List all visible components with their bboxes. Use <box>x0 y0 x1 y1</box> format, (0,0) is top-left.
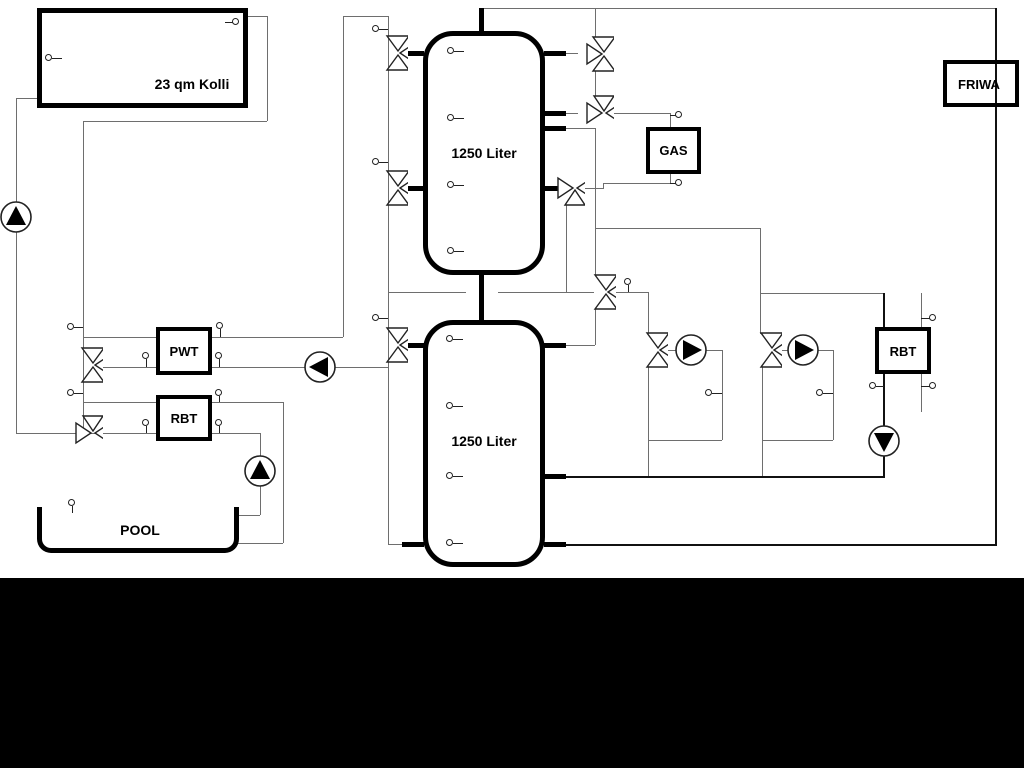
sensor-stem <box>453 476 463 477</box>
sensor-stem <box>52 58 62 59</box>
pipe-segment <box>760 293 884 294</box>
temp-sensor-icon <box>67 389 74 396</box>
sensor-stem <box>72 506 73 513</box>
sensor-stem <box>670 115 676 116</box>
gas-label: GAS <box>646 143 701 158</box>
pump-icon <box>0 200 33 234</box>
temp-sensor-icon <box>929 382 936 389</box>
temp-sensor-icon <box>215 352 222 359</box>
sensor-stem <box>219 426 220 433</box>
sensor-stem <box>146 359 147 367</box>
pump-icon <box>786 333 820 367</box>
pipe-segment <box>238 543 283 544</box>
pipe-segment <box>648 292 649 334</box>
sensor-stem <box>453 339 463 340</box>
pipe-segment <box>595 128 596 276</box>
sensor-stem <box>379 29 388 30</box>
tank-port <box>544 111 566 116</box>
sensor-stem <box>225 22 233 23</box>
sensor-stem <box>921 318 930 319</box>
pipe-segment <box>760 228 761 334</box>
tank-port <box>479 275 484 320</box>
temp-sensor-icon <box>67 323 74 330</box>
pipe-segment <box>612 292 648 293</box>
tank-port <box>544 51 566 56</box>
pipe-segment <box>595 308 596 345</box>
temp-sensor-icon <box>447 114 454 121</box>
temp-sensor-icon <box>446 472 453 479</box>
pipe-segment <box>238 515 260 516</box>
pipe-segment <box>267 16 268 121</box>
pipe-segment <box>16 98 38 99</box>
temp-sensor-icon <box>232 18 239 25</box>
pump-icon <box>303 350 337 384</box>
sensor-stem <box>876 386 884 387</box>
sensor-stem <box>379 318 388 319</box>
pipe-segment <box>611 113 670 114</box>
pipe-segment <box>762 366 763 477</box>
pipe-segment <box>762 440 833 441</box>
pwt-label: PWT <box>156 344 212 359</box>
tank-port <box>544 343 566 348</box>
three-way-valve-icon <box>63 345 103 385</box>
hydraulic-schematic: 23 qm Kolli 1250 Liter 1250 Liter GAS FR… <box>0 0 1024 768</box>
temp-sensor-icon <box>675 179 682 186</box>
sensor-stem <box>219 396 220 402</box>
sensor-stem <box>823 393 833 394</box>
three-way-valve-icon <box>368 33 408 73</box>
sensor-stem <box>628 285 629 292</box>
tank-upper-label: 1250 Liter <box>424 145 544 161</box>
pipe-segment <box>247 16 267 17</box>
sensor-stem <box>74 393 83 394</box>
pipe-segment <box>498 292 566 293</box>
sensor-stem <box>219 359 220 367</box>
tank-lower-label: 1250 Liter <box>424 433 544 449</box>
collector-label: 23 qm Kolli <box>122 76 262 92</box>
temp-sensor-icon <box>447 181 454 188</box>
sensor-stem <box>453 543 463 544</box>
pipe-segment <box>343 16 388 17</box>
pipe-segment <box>83 121 84 433</box>
three-way-valve-icon <box>368 325 408 365</box>
pipe-segment <box>83 121 267 122</box>
pipe-segment <box>603 183 670 184</box>
pipe-segment <box>566 476 885 478</box>
temp-sensor-icon <box>675 111 682 118</box>
temp-sensor-icon <box>624 278 631 285</box>
sensor-stem <box>670 183 676 184</box>
temp-sensor-icon <box>45 54 52 61</box>
pipe-segment <box>16 98 17 433</box>
temp-sensor-icon <box>215 419 222 426</box>
temp-sensor-icon <box>816 389 823 396</box>
sensor-stem <box>146 426 147 433</box>
sensor-stem <box>712 393 722 394</box>
pipe-segment <box>566 345 595 346</box>
three-way-valve-icon <box>574 34 614 74</box>
temp-sensor-icon <box>705 389 712 396</box>
temp-sensor-icon <box>68 499 75 506</box>
sensor-stem <box>74 327 83 328</box>
pump-icon <box>867 424 901 458</box>
tank-port <box>544 474 566 479</box>
three-way-valve-icon <box>576 272 616 312</box>
temp-sensor-icon <box>869 382 876 389</box>
pipe-segment <box>388 292 466 293</box>
sensor-stem <box>921 386 930 387</box>
tank-port <box>544 542 566 547</box>
temp-sensor-icon <box>372 158 379 165</box>
pipe-segment <box>833 350 834 440</box>
three-way-valve-icon <box>368 168 408 208</box>
pipe-segment <box>722 350 723 440</box>
temp-sensor-icon <box>215 389 222 396</box>
pipe-segment <box>648 366 649 477</box>
pipe-segment <box>388 16 389 544</box>
sensor-stem <box>220 329 221 337</box>
solar-collector <box>37 8 248 108</box>
three-way-valve-icon <box>742 330 782 370</box>
sensor-stem <box>454 118 464 119</box>
temp-sensor-icon <box>446 539 453 546</box>
rbt-left-label: RBT <box>156 411 212 426</box>
temp-sensor-icon <box>446 335 453 342</box>
bottom-black-bar <box>0 578 1024 768</box>
three-way-valve-icon <box>63 413 103 453</box>
pipe-segment <box>16 433 260 434</box>
temp-sensor-icon <box>446 402 453 409</box>
pipe-segment <box>566 202 567 292</box>
sensor-stem <box>453 406 463 407</box>
three-way-valve-icon <box>545 168 585 208</box>
tank-port <box>479 8 484 32</box>
sensor-stem <box>454 51 464 52</box>
temp-sensor-icon <box>447 247 454 254</box>
rbt-right-label: RBT <box>875 344 931 359</box>
pipe-segment <box>283 402 284 543</box>
temp-sensor-icon <box>142 419 149 426</box>
pipe-segment <box>595 228 760 229</box>
pipe-segment <box>343 16 344 337</box>
pipe-segment <box>83 337 343 338</box>
tank-port <box>544 126 566 131</box>
friwa-label: FRIWA <box>941 77 1017 92</box>
temp-sensor-icon <box>372 314 379 321</box>
sensor-stem <box>454 185 464 186</box>
temp-sensor-icon <box>447 47 454 54</box>
three-way-valve-icon <box>574 93 614 133</box>
tank-port <box>402 542 424 547</box>
temp-sensor-icon <box>372 25 379 32</box>
temp-sensor-icon <box>929 314 936 321</box>
pipe-segment <box>603 183 604 189</box>
pipe-segment <box>481 8 997 9</box>
pump-icon <box>243 454 277 488</box>
sensor-stem <box>379 162 388 163</box>
pipe-segment <box>388 544 403 545</box>
three-way-valve-icon <box>628 330 668 370</box>
pool-label: POOL <box>80 522 200 538</box>
pipe-segment <box>582 188 603 189</box>
pump-icon <box>674 333 708 367</box>
pipe-segment <box>100 367 388 368</box>
pipe-segment <box>648 440 722 441</box>
pipe-segment <box>566 544 997 546</box>
pipe-segment <box>883 293 885 327</box>
sensor-stem <box>454 251 464 252</box>
temp-sensor-icon <box>142 352 149 359</box>
temp-sensor-icon <box>216 322 223 329</box>
